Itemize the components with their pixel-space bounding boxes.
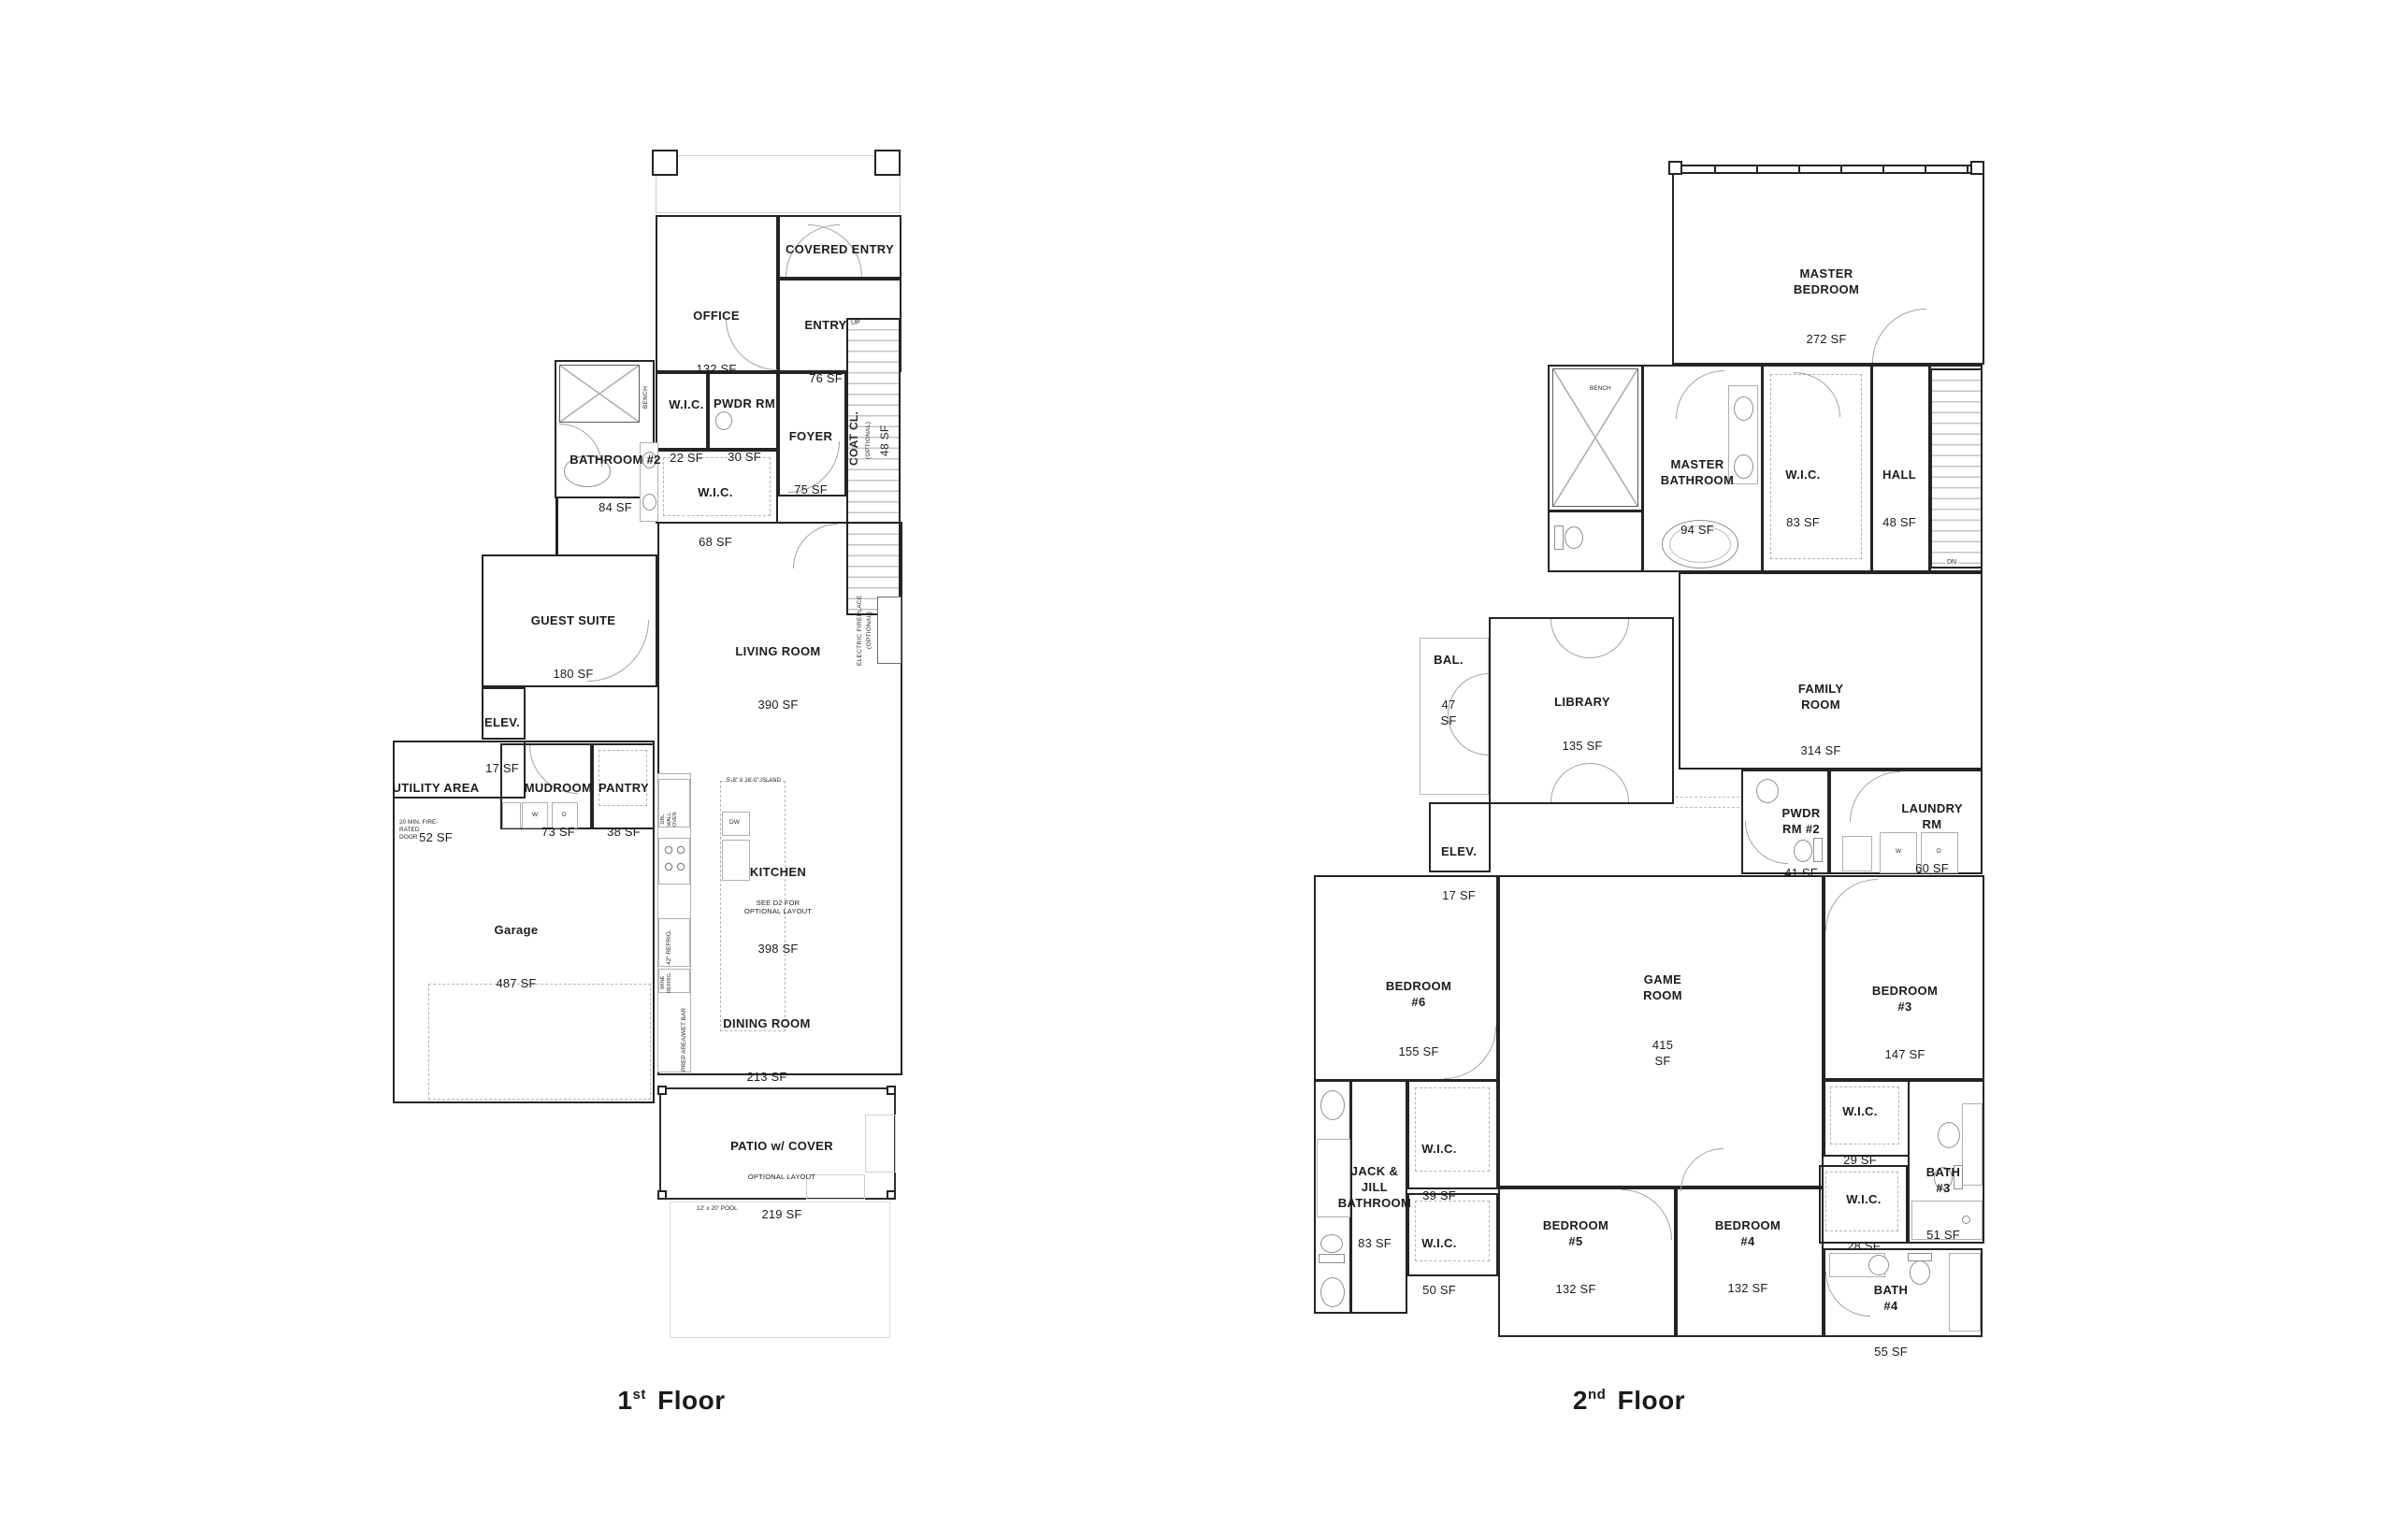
room-label-kitchen: KITCHEN SEE D2 FOR OPTIONAL LAYOUT 398 S… xyxy=(744,847,812,973)
room-label-game-room: GAME ROOM 415 SF xyxy=(1643,955,1682,1086)
shower-box xyxy=(1949,1253,1981,1331)
optional-wall-dashes xyxy=(1676,797,1739,798)
window-band xyxy=(1674,165,1983,174)
room-label-entry: ENTRY 76 SF xyxy=(804,300,846,403)
room-label-coat-closet-area: 48 SF xyxy=(878,412,891,468)
room-label-master-bathroom: MASTER BATHROOM 94 SF xyxy=(1661,439,1734,554)
room-label-mudroom: MUDROOM 73 SF xyxy=(525,763,593,856)
sink-icon xyxy=(1938,1122,1960,1148)
room-label-foyer: FOYER 75 SF xyxy=(789,411,833,514)
second-floor-title: 2nd Floor xyxy=(1573,1386,1685,1416)
room-label-bedroom6: BEDROOM #6 155 SF xyxy=(1386,961,1451,1076)
sink-icon xyxy=(1320,1277,1345,1307)
room-label-wic28: W.I.C. 28 SF xyxy=(1846,1174,1882,1271)
optional-wall-dashes xyxy=(1676,807,1739,808)
room-label-hall: HALL 48 SF xyxy=(1882,450,1916,547)
room-label-wic-hall: W.I.C. 68 SF xyxy=(698,468,733,567)
room-label-wic-master: W.I.C. 83 SF xyxy=(1785,450,1821,547)
stairs-up-label: UP xyxy=(851,320,860,327)
pool-label: 12' x 20' POOL xyxy=(697,1205,738,1213)
room-label-bedroom4: BEDROOM #4 132 SF xyxy=(1715,1201,1781,1313)
stairs-down-label: DN xyxy=(1945,559,1958,567)
room-label-master-bedroom: MASTER BEDROOM 272 SF xyxy=(1794,249,1859,364)
bench-label: BENCH xyxy=(642,381,649,413)
room-label-jack-jill: JACK & JILL BATHROOM 83 SF xyxy=(1338,1146,1411,1268)
corner-post xyxy=(1970,161,1984,175)
room-label-library: LIBRARY 135 SF xyxy=(1554,677,1610,770)
washer-label: W xyxy=(532,812,538,819)
room-label-covered-entry: COVERED ENTRY xyxy=(786,224,894,274)
room-label-guest-suite: GUEST SUITE 180 SF xyxy=(531,596,616,698)
room-label-balcony: BAL. 47 SF xyxy=(1434,635,1464,745)
dryer-label: D xyxy=(1937,848,1941,856)
wall-segment xyxy=(1761,365,1764,572)
room-label-garage: Garage 487 SF xyxy=(495,905,539,1008)
room-label-elevator: ELEV. 17 SF xyxy=(484,698,520,793)
laundry-sink-box xyxy=(1842,836,1872,871)
floor-plan-document: { "floors": { "first": { "title": {"num"… xyxy=(0,0,2394,1540)
staircase-down xyxy=(1930,368,1983,569)
room-label-elevator2: ELEV. 17 SF xyxy=(1441,827,1477,920)
island-label: 5'-8" X 16'-0" ISLAND xyxy=(727,777,781,784)
sink-icon xyxy=(1320,1090,1345,1120)
room-label-bath3: BATH #3 51 SF xyxy=(1926,1147,1961,1259)
tub-drain xyxy=(1962,1216,1970,1224)
fire-door-note: 20 MIN. FIRE- RATED DOOR xyxy=(399,819,439,842)
room-label-pwdr: PWDR RM 30 SF xyxy=(714,379,775,482)
refrigerator-label: 42" REFRIG. xyxy=(666,929,672,965)
washer-label: W xyxy=(1896,848,1901,856)
fireplace-label: ELECTRIC FIREPLACE xyxy=(857,594,863,667)
wall-oven-label: DBL WALL OVEN xyxy=(660,812,679,827)
room-label-dining-room: DINING ROOM 213 SF xyxy=(723,999,810,1101)
bench-label: BENCH xyxy=(1590,385,1611,393)
wall-segment xyxy=(1548,510,1641,512)
room-label-wic29: W.I.C. 29 SF xyxy=(1842,1087,1878,1185)
room-label-pwdr2: PWDR RM #2 41 SF xyxy=(1781,788,1820,898)
room-label-coat-closet: COAT CL. xyxy=(847,408,860,469)
room-label-wic50: W.I.C. 50 SF xyxy=(1421,1218,1457,1315)
room-label-bedroom3: BEDROOM #3 147 SF xyxy=(1872,966,1938,1079)
fireplace-optional-label: (OPTIONAL) xyxy=(866,609,873,652)
room-label-bathroom2: BATHROOM #2 84 SF xyxy=(570,435,661,532)
toilet-icon xyxy=(1565,526,1583,549)
sink-icon xyxy=(1734,454,1753,479)
room-label-bath4: BATH #4 55 SF xyxy=(1874,1265,1909,1376)
room-label-bedroom5: BEDROOM #5 132 SF xyxy=(1543,1201,1608,1314)
coat-closet-optional: (OPTIONAL) xyxy=(865,416,872,465)
sink-icon xyxy=(1734,396,1753,421)
toilet-icon xyxy=(1554,525,1564,550)
dishwasher-label: DW xyxy=(729,819,740,827)
vanity-counter xyxy=(1962,1103,1983,1186)
sink-icon xyxy=(1756,779,1779,803)
room-label-patio: PATIO w/ COVER OPTIONAL LAYOUT 219 SF xyxy=(730,1121,833,1239)
room-label-utility: UTILITY AREA 52 SF xyxy=(392,763,479,862)
wall-segment xyxy=(1641,365,1644,572)
corner-post xyxy=(1668,161,1682,175)
wine-refrigerator-label: WINE REFRIG. xyxy=(660,972,672,993)
toilet-icon xyxy=(1910,1260,1930,1285)
first-floor-title: 1st Floor xyxy=(617,1386,725,1416)
room-label-laundry: LAUNDRY RM 60 SF xyxy=(1901,784,1962,893)
dryer-label: D xyxy=(562,812,567,819)
room-label-living-room: LIVING ROOM 390 SF xyxy=(735,626,820,729)
room-label-pantry: PANTRY 38 SF xyxy=(598,763,649,856)
prep-bar-label: PREP AREA/WET BAR xyxy=(681,1008,687,1072)
wall-segment xyxy=(1870,365,1873,572)
room-label-wic39: W.I.C. 39 SF xyxy=(1421,1124,1457,1220)
room-label-family-room: FAMILY ROOM 314 SF xyxy=(1798,664,1843,775)
